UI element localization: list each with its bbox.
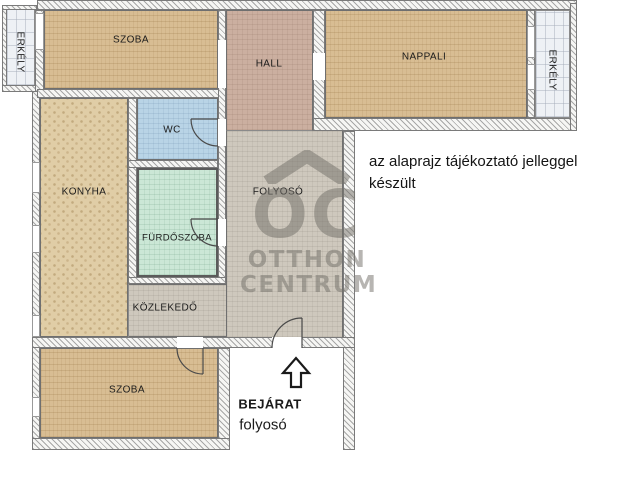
label-bedroom-bottom: SZOBA (109, 385, 145, 396)
room-bedroom-top (44, 10, 218, 89)
disclaimer-text: az alaprajz tájékoztató jelleggel készül… (369, 151, 614, 195)
room-kitchen (40, 98, 128, 337)
label-balcony-right: ERKÉLY (547, 49, 558, 90)
wall-bottom-exterior (32, 438, 230, 450)
wall-wc-bath-divider (128, 160, 218, 168)
window-bedroom-top-balcony (35, 13, 44, 50)
wall-top-exterior (37, 0, 577, 10)
wall-bedroom-bottom-right (218, 348, 230, 450)
window-living-balcony-2 (527, 64, 535, 90)
door-opening-entrance (272, 337, 302, 348)
wall-living-bottom (313, 118, 577, 131)
door-opening-bathroom (218, 219, 226, 246)
label-corridor-kozlekedo: KÖZLEKEDŐ (133, 303, 198, 314)
window-kitchen-2 (32, 225, 40, 253)
window-living-balcony-1 (527, 26, 535, 58)
floor-plan: SZOBA HALL NAPPALI ERKÉLY ERKÉLY WC KONY… (0, 0, 623, 500)
label-hall: HALL (256, 59, 283, 70)
room-living-room (325, 10, 527, 118)
wall-balcony-left-top (2, 5, 37, 10)
passage-hall-living (313, 53, 325, 80)
room-bathroom (137, 168, 218, 277)
entrance-arrow-icon (283, 358, 309, 387)
wall-corridor-right (343, 131, 355, 450)
kitchen-corridor-divider (128, 284, 129, 337)
label-entrance: BEJÁRAT (238, 397, 301, 412)
wall-kitchen-wc-divider (128, 98, 137, 284)
label-entrance-corridor: folyosó (239, 417, 287, 434)
door-opening-bedroom-bottom (177, 337, 203, 348)
window-kitchen-3 (32, 315, 40, 337)
room-corridor-main (226, 131, 343, 337)
label-wc: WC (163, 125, 180, 136)
room-hall (226, 10, 313, 131)
label-kitchen: KONYHA (62, 187, 107, 198)
window-bedroom-bottom (32, 397, 40, 417)
label-living-room: NAPPALI (402, 52, 446, 63)
passage-bedroom-hall (218, 40, 226, 88)
window-kitchen-1 (32, 162, 40, 193)
door-opening-wc (218, 119, 226, 146)
wall-balcony-right-outer (570, 3, 577, 131)
label-bathroom: FÜRDŐSZOBA (142, 233, 212, 244)
label-bedroom-top: SZOBA (113, 35, 149, 46)
label-balcony-left: ERKÉLY (15, 31, 26, 72)
label-corridor-main: FOLYOSÓ (253, 187, 303, 198)
wall-below-bedroom-top (37, 89, 226, 98)
wall-bath-bottom (128, 277, 226, 284)
wall-balcony-left-outer (2, 5, 7, 92)
